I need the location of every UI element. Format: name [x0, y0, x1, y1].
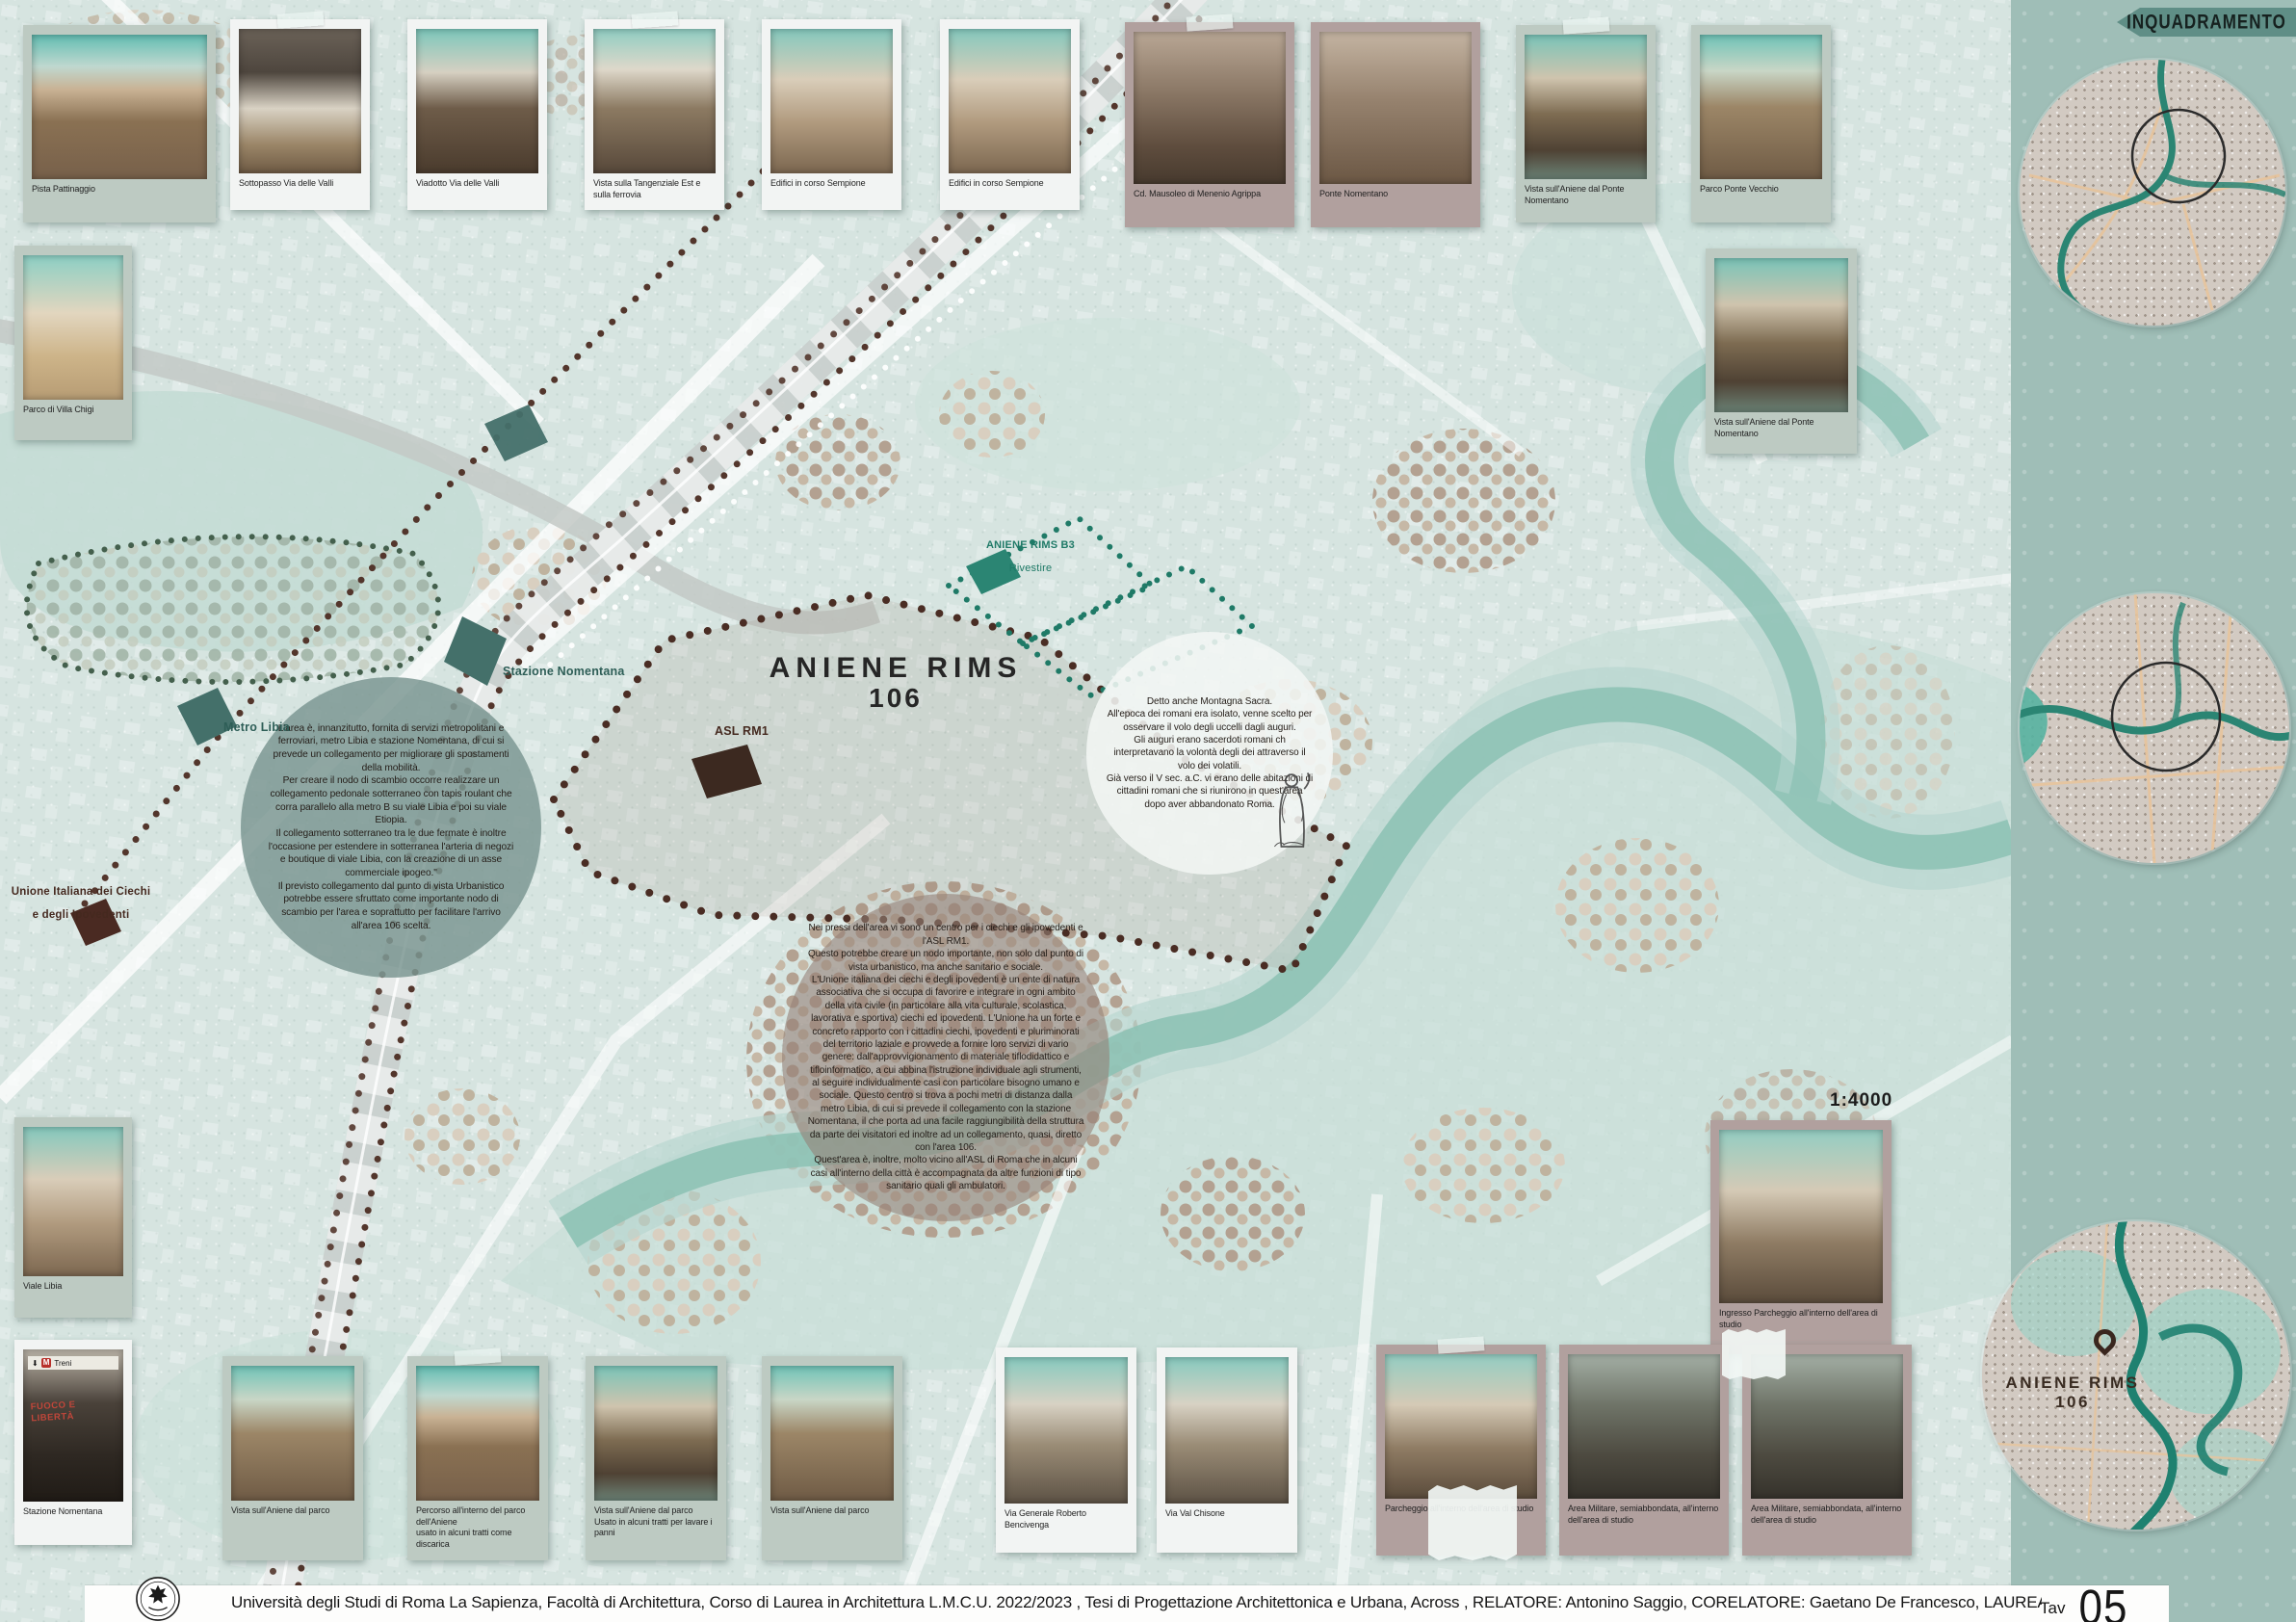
area-106-number: 106	[732, 684, 1059, 713]
tape-decoration	[1438, 1336, 1485, 1353]
sign-text: Treni	[54, 1359, 71, 1368]
photo-caption: Viadotto Via delle Valli	[416, 178, 538, 190]
inset-canvas	[2020, 60, 2285, 326]
photo-frame: Ingresso Parcheggio all'interno dell'are…	[1710, 1120, 1892, 1354]
metro-entrance-sign: ⬇ M Treni	[28, 1356, 118, 1370]
photo-aniene-parco-2	[770, 1366, 894, 1501]
photo-frame: Via Generale Roberto Bencivenga	[996, 1347, 1136, 1553]
photo-villa-chigi	[23, 255, 123, 400]
photo-viale-libia	[23, 1127, 123, 1276]
note-mobility-text: L'area è, innanzitutto, fornita di servi…	[266, 722, 516, 933]
photo-ingresso-parcheggio	[1719, 1130, 1883, 1303]
tape-decoration	[455, 1347, 502, 1365]
paper-stamp-decoration	[1428, 1485, 1517, 1560]
photo-caption: Stazione Nomentana	[23, 1506, 123, 1518]
photo-caption: Via Val Chisone	[1165, 1508, 1289, 1520]
photo-frame: Viadotto Via delle Valli	[407, 19, 547, 210]
photo-caption: Sottopasso Via delle Valli	[239, 178, 361, 190]
inset-canvas	[2020, 593, 2289, 863]
photo-area-militare-1	[1568, 1354, 1720, 1499]
note-circle-blind-center: Nei pressi dell'area vi sono un centro p…	[782, 894, 1109, 1221]
photo-caption: Via Generale Roberto Bencivenga	[1004, 1508, 1128, 1530]
photo-frame: Sottopasso Via delle Valli	[230, 19, 370, 210]
photo-percorso-parco	[416, 1366, 539, 1501]
photo-caption: Vista sull'Aniene dal Ponte Nomentano	[1525, 184, 1647, 206]
photo-caption: Edifici in corso Sempione	[949, 178, 1071, 190]
photo-via-bencivenga	[1004, 1357, 1128, 1504]
photo-ponte-nomentano	[1319, 32, 1472, 184]
unione-label-line2: e degli Ipovedenti	[4, 909, 158, 921]
photo-parcheggio	[1385, 1354, 1537, 1499]
augur-illustration	[1265, 769, 1318, 853]
inquadramento-banner: INQUADRAMENTO	[2117, 8, 2296, 37]
photo-frame: Vista sull'Aniene dal parco	[222, 1356, 363, 1560]
tape-decoration	[631, 11, 678, 28]
sheet-number: Tav 05	[2040, 1591, 2127, 1622]
photo-caption: Cd. Mausoleo di Menenio Agrippa	[1134, 189, 1286, 200]
photo-caption: Vista sull'Aniene dal parco Usato in alc…	[594, 1505, 717, 1539]
photo-edifici-sempione-1	[770, 29, 893, 173]
metro-logo-icon: M	[41, 1358, 52, 1368]
photo-aniene-ponte-2	[1714, 258, 1848, 412]
photo-stazione-nomentana-entrance: ⬇ M Treni FUOCO E LIBERTÀ	[23, 1349, 123, 1502]
inset-map-context-north	[2020, 60, 2285, 326]
down-arrow-icon: ⬇	[32, 1359, 39, 1368]
sapienza-logo	[135, 1576, 181, 1622]
photo-caption: Area Militare, semiabbondata, all'intern…	[1568, 1504, 1720, 1526]
banner-label: INQUADRAMENTO	[2126, 11, 2286, 35]
photo-caption: Viale Libia	[23, 1281, 123, 1293]
photo-caption: Pista Pattinaggio	[32, 184, 207, 196]
photo-caption: Vista sull'Aniene dal parco	[770, 1505, 894, 1517]
photo-caption: Ponte Nomentano	[1319, 189, 1472, 200]
photo-caption: Percorso all'interno del parco dell'Anie…	[416, 1505, 539, 1551]
photo-frame: Viale Libia	[14, 1117, 132, 1318]
photo-frame: Vista sull'Aniene dal parco Usato in alc…	[586, 1356, 726, 1560]
photo-via-val-chisone	[1165, 1357, 1289, 1504]
photo-sottopasso	[239, 29, 361, 173]
photo-frame: Vista sulla Tangenziale Est e sulla ferr…	[585, 19, 724, 210]
graffiti-text: FUOCO E LIBERTÀ	[30, 1398, 119, 1426]
tav-number: 05	[2078, 1588, 2127, 1622]
photo-aniene-panni	[594, 1366, 717, 1501]
inset-map-context-mid	[2020, 593, 2289, 863]
photo-frame: Ponte Nomentano	[1311, 22, 1480, 227]
photo-aniene-parco-1	[231, 1366, 354, 1501]
photo-frame: Pista Pattinaggio	[23, 25, 216, 222]
unione-label-line1: Unione Italiana dei Ciechi	[4, 886, 158, 898]
study-area-ring	[2132, 110, 2225, 202]
photo-frame: Percorso all'interno del parco dell'Anie…	[407, 1356, 548, 1560]
photo-frame: ⬇ M Treni FUOCO E LIBERTÀ Stazione Nomen…	[14, 1340, 132, 1545]
map-label-stazione-nomentana: Stazione Nomentana	[503, 665, 625, 678]
tape-decoration	[276, 11, 324, 28]
photo-caption: Vista sulla Tangenziale Est e sulla ferr…	[593, 178, 716, 200]
photo-frame: Area Militare, semiabbondata, all'intern…	[1559, 1345, 1729, 1556]
photo-caption: Ingresso Parcheggio all'interno dell'are…	[1719, 1308, 1883, 1330]
photo-frame: Vista sull'Aniene dal parco	[762, 1356, 902, 1560]
map-label-asl-rm1: ASL RM1	[715, 724, 769, 738]
photo-caption: Area Militare, semiabbondata, all'intern…	[1751, 1504, 1903, 1526]
photo-frame: Vista sull'Aniene dal Ponte Nomentano	[1706, 249, 1857, 454]
photo-caption: Parco Ponte Vecchio	[1700, 184, 1822, 196]
photo-parco-ponte-vecchio	[1700, 35, 1822, 179]
map-label-unione-ciechi: Unione Italiana dei Ciechi e degli Ipove…	[4, 875, 158, 932]
photo-caption: Edifici in corso Sempione	[770, 178, 893, 190]
photo-frame: Cd. Mausoleo di Menenio Agrippa	[1125, 22, 1294, 227]
photo-caption: Parco di Villa Chigi	[23, 405, 123, 416]
photo-frame: Edifici in corso Sempione	[940, 19, 1080, 210]
photo-viadotto	[416, 29, 538, 173]
area-b3-subtitle: Rivestire	[953, 562, 1108, 574]
inset-area-number: 106	[1996, 1393, 2150, 1412]
map-label-area-106: ANIENE RIMS 106	[732, 653, 1059, 714]
photo-pista-pattinaggio	[32, 35, 207, 179]
photo-caption: Vista sull'Aniene dal parco	[231, 1505, 354, 1517]
area-106-title: ANIENE RIMS	[732, 653, 1059, 684]
photo-aniene-ponte-1	[1525, 35, 1647, 179]
tape-decoration	[1187, 13, 1234, 31]
photo-frame: Parco Ponte Vecchio	[1691, 25, 1831, 222]
inset-area-title: ANIENE RIMS	[1996, 1373, 2150, 1393]
photo-frame: Via Val Chisone	[1157, 1347, 1297, 1553]
photo-frame: Vista sull'Aniene dal Ponte Nomentano	[1516, 25, 1656, 222]
inset-area-label: ANIENE RIMS 106	[1996, 1373, 2150, 1411]
photo-frame: Edifici in corso Sempione	[762, 19, 901, 210]
thesis-board: INQUADRAMENTO	[0, 0, 2296, 1622]
tape-decoration	[1562, 16, 1609, 34]
photo-tangenziale	[593, 29, 716, 173]
map-label-metro-libia: Metro Libia	[223, 720, 290, 734]
tav-label: Tav	[2040, 1599, 2065, 1618]
area-b3-title: ANIENE RIMS B3	[953, 539, 1108, 551]
note-blind-center-text: Nei pressi dell'area vi sono un centro p…	[807, 922, 1084, 1192]
note-circle-montagna-sacra: Detto anche Montagna Sacra. All'epoca de…	[1086, 632, 1333, 875]
footer-title: Università degli Studi di Roma La Sapien…	[231, 1593, 2042, 1612]
scale-label: 1:4000	[1830, 1090, 1892, 1112]
photo-caption: Vista sull'Aniene dal Ponte Nomentano	[1714, 417, 1848, 439]
photo-mausoleo	[1134, 32, 1286, 184]
map-label-area-b3: ANIENE RIMS B3 Rivestire	[953, 528, 1108, 586]
paper-stamp-decoration	[1722, 1329, 1786, 1379]
photo-frame: Parco di Villa Chigi	[14, 246, 132, 440]
photo-edifici-sempione-2	[949, 29, 1071, 173]
inset-map-aniene: ANIENE RIMS 106	[1982, 1221, 2290, 1530]
